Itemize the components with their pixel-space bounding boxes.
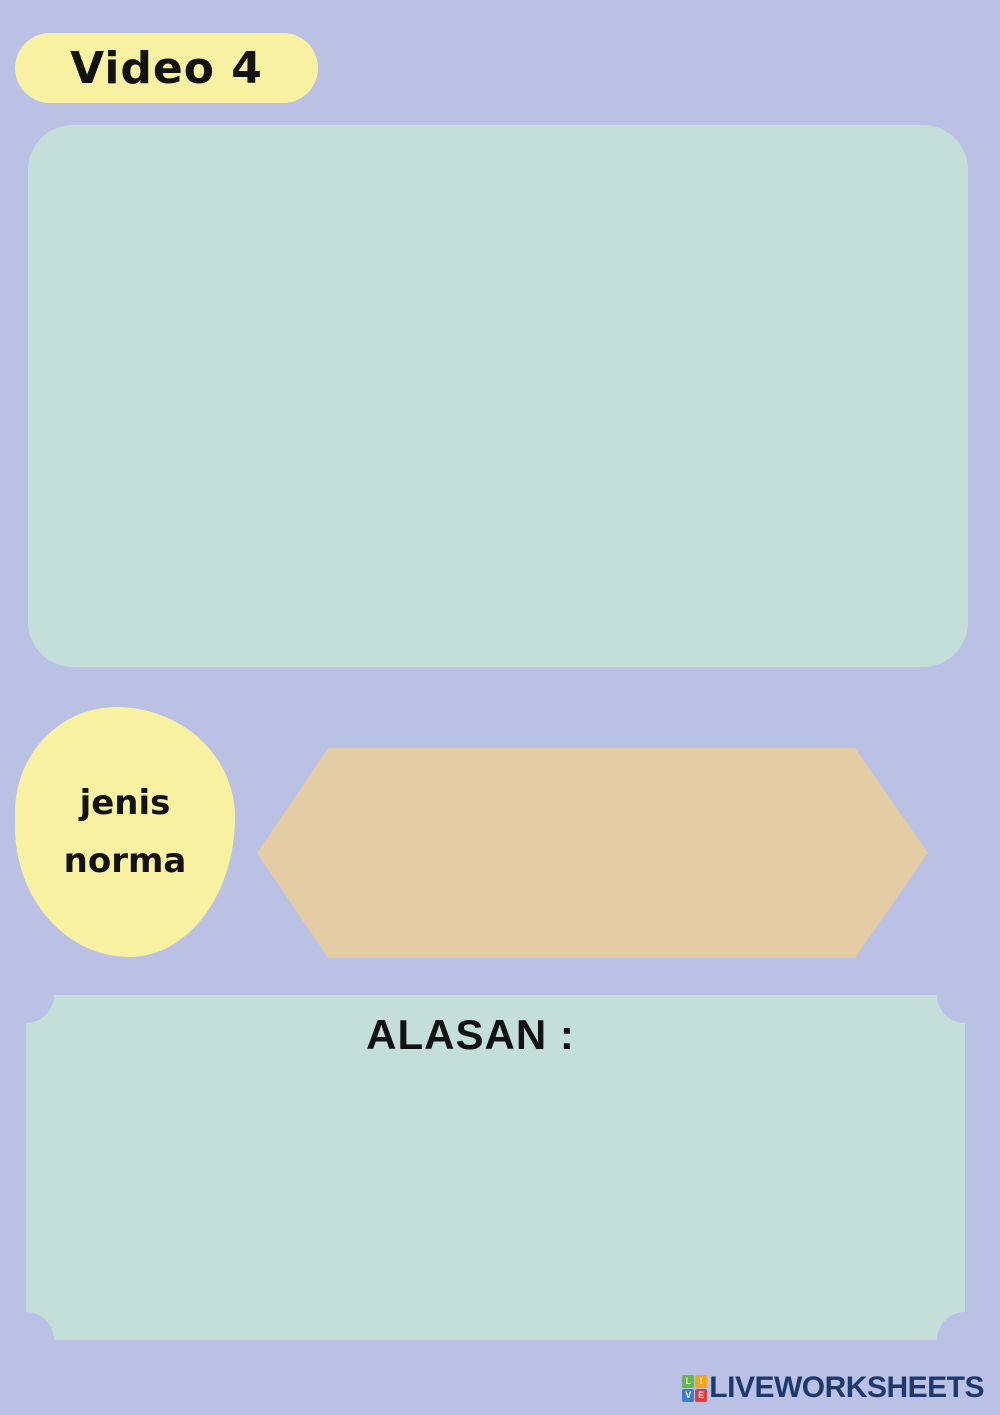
video-badge: Video 4 <box>15 33 318 103</box>
video-badge-label: Video 4 <box>70 43 263 94</box>
logo-tile-i: I <box>695 1375 707 1388</box>
video-placeholder-area[interactable] <box>28 125 968 667</box>
liveworksheets-logo-text: LIVEWORKSHEETS <box>709 1371 984 1405</box>
liveworksheets-logo[interactable]: LIVE LIVEWORKSHEETS <box>682 1371 984 1405</box>
logo-tile-v: V <box>682 1389 694 1402</box>
corner-notch-bottom-left <box>26 1312 54 1340</box>
worksheet-page: Video 4 jenis norma ALASAN : LIVE LIVEWO… <box>0 0 1000 1415</box>
jenis-norma-line1: jenis <box>80 786 171 820</box>
alasan-heading: ALASAN : <box>1 1011 940 1059</box>
jenis-norma-label: jenis norma <box>15 707 235 957</box>
jenis-norma-answer-area[interactable] <box>257 748 928 958</box>
logo-tile-e: E <box>695 1389 707 1402</box>
logo-tile-l: L <box>682 1375 694 1388</box>
alasan-answer-area[interactable]: ALASAN : <box>26 995 965 1340</box>
corner-notch-bottom-right <box>937 1312 965 1340</box>
liveworksheets-logo-icon: LIVE <box>682 1375 707 1402</box>
corner-notch-top-right <box>937 995 965 1023</box>
jenis-norma-line2: norma <box>64 844 187 878</box>
